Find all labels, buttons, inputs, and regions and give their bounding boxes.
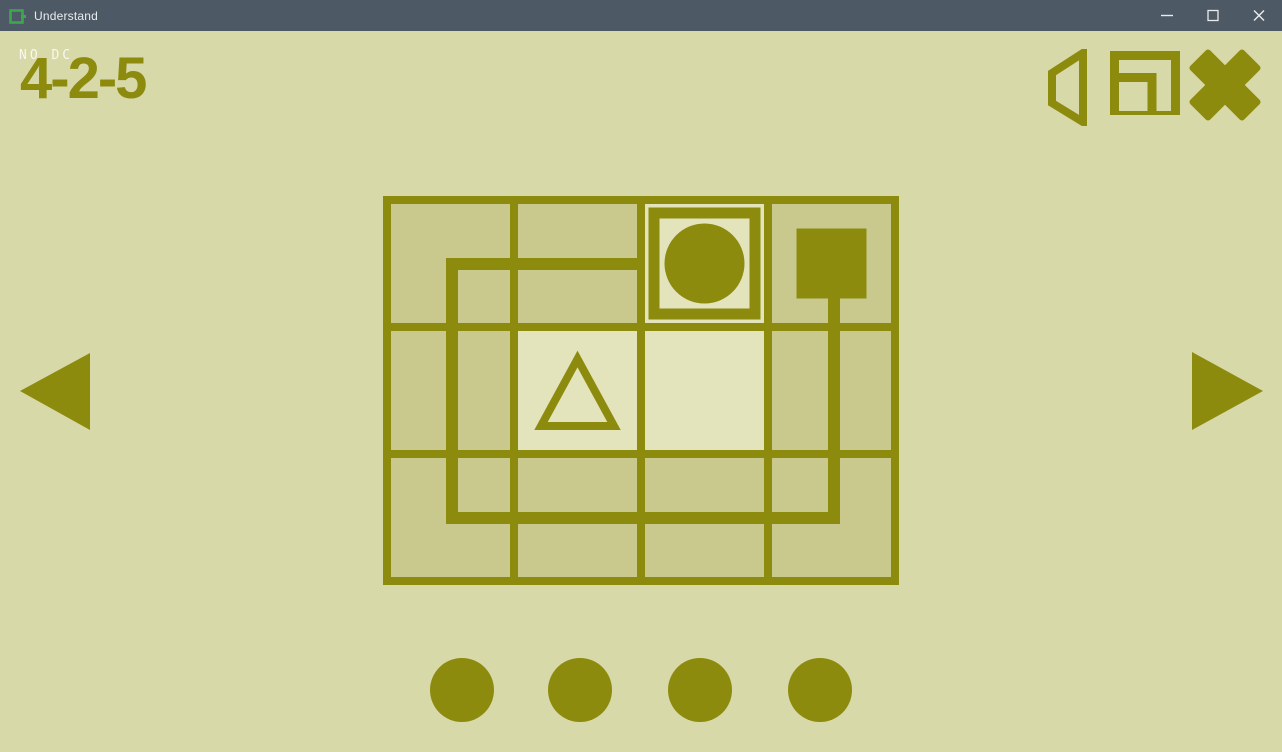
puzzle-board[interactable] [383,196,899,585]
minimize-icon [1144,0,1190,31]
progress-dot [430,658,494,722]
playfield: NO DC 4-2-5 [0,31,1282,752]
progress-dot [788,658,852,722]
close-button[interactable] [1236,0,1282,31]
titlebar: Understand [0,0,1282,31]
window-mode-icon[interactable] [1106,47,1184,115]
next-arrow-icon[interactable] [1188,348,1268,434]
progress-dot [548,658,612,722]
minimize-button[interactable] [1144,0,1190,31]
window-title: Understand [34,9,98,23]
circle-shape [665,224,745,304]
exit-icon[interactable] [1186,46,1264,124]
board-cell-r1c2[interactable] [645,331,764,450]
speaker-icon[interactable] [1044,49,1092,126]
maximize-icon [1190,0,1236,31]
level-label: 4-2-5 [20,50,145,108]
maximize-button[interactable] [1190,0,1236,31]
square-shape [797,229,867,299]
app-window: Understand NO DC 4-2-5 [0,0,1282,752]
prev-arrow-icon[interactable] [16,349,96,435]
close-icon [1236,0,1282,31]
understand-logo-icon[interactable] [8,7,26,25]
progress-dot [668,658,732,722]
board-cell-r1c1[interactable] [518,331,637,450]
